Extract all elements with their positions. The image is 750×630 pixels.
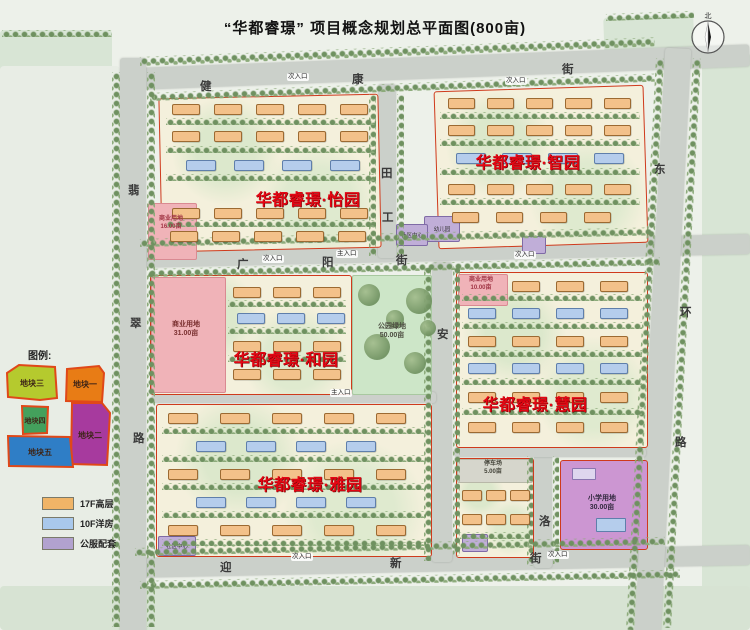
entrance-label: 次入口 [547, 551, 569, 559]
building-17f [233, 287, 261, 298]
street-char: 迎 [220, 559, 232, 575]
street-char: 田 [381, 165, 393, 181]
entrance-label: 主入口 [330, 389, 352, 397]
street-char: 洛 [539, 513, 551, 529]
building-17f [296, 231, 324, 242]
landuse-label-commercial-nw: 商业用地 16.00亩 [159, 216, 183, 232]
building-10f [468, 363, 496, 374]
tree-canopy [420, 320, 436, 336]
building-10f [186, 160, 216, 171]
tree-row [397, 94, 404, 256]
building-17f [168, 469, 198, 480]
compass-north-label: 北 [705, 12, 712, 20]
building-17f [298, 104, 326, 115]
building-17f [604, 98, 631, 109]
building-17f [526, 98, 553, 109]
building-10f [600, 308, 628, 319]
street-char: 广 [237, 256, 249, 272]
building-17f [565, 184, 592, 195]
building-10f [237, 313, 265, 324]
building-17f [462, 514, 482, 525]
tree-row [440, 112, 640, 119]
building-17f [340, 104, 368, 115]
tree-row [162, 427, 426, 434]
building-17f [600, 336, 628, 347]
building-17f [487, 125, 514, 136]
tree-row [162, 455, 426, 462]
building-17f [556, 281, 584, 292]
building-17f [452, 212, 479, 223]
legend-swatch-17f [42, 497, 74, 510]
building-17f [540, 212, 567, 223]
building-10f [468, 308, 496, 319]
building-10f [512, 308, 540, 319]
building-17f [220, 525, 250, 536]
building-10f [330, 160, 360, 171]
building-10f [317, 313, 345, 324]
building-17f [565, 125, 592, 136]
building-17f [338, 231, 366, 242]
green-parcel-right [702, 52, 750, 630]
building-10f [282, 160, 312, 171]
building-10f [277, 313, 305, 324]
tree-row [440, 139, 640, 146]
building-17f [487, 98, 514, 109]
tree-row [2, 30, 112, 37]
tree-row [462, 378, 642, 385]
building-17f [600, 422, 628, 433]
road-internal-east [454, 448, 646, 457]
street-char: 安 [437, 326, 449, 342]
tree-row [553, 456, 559, 564]
building-17f [604, 125, 631, 136]
compass-icon: 北 [686, 8, 730, 58]
school-building [572, 468, 596, 480]
building-10f [346, 497, 376, 508]
building-17f [168, 413, 198, 424]
tree-row [228, 327, 346, 334]
district-label-zhiyuan: 华都睿璟·智园 [476, 149, 581, 173]
legend-label-10f: 10F洋房 [80, 517, 114, 530]
district-label-heyuan: 华都睿璟·和园 [234, 346, 339, 370]
building-17f [512, 422, 540, 433]
tree-row [460, 532, 530, 539]
building-10f [594, 153, 624, 164]
building-10f [346, 441, 376, 452]
building-17f [487, 184, 514, 195]
building-17f [298, 131, 326, 142]
street-char: 新 [390, 555, 402, 571]
building-17f [462, 490, 482, 501]
entrance-label: 主入口 [336, 250, 358, 258]
district-label-yayuan: 华都睿璟·雅园 [258, 471, 363, 495]
landuse-label-parking: 停车场 5.00亩 [484, 461, 502, 477]
tree-row [462, 294, 642, 301]
building-17f [376, 469, 406, 480]
building-17f [604, 184, 631, 195]
building-17f [273, 369, 301, 380]
building-17f [324, 413, 354, 424]
building-17f [584, 212, 611, 223]
legend-row-17f: 17F高层 [42, 497, 114, 510]
legend-swatch-public [42, 537, 74, 550]
building-17f [212, 231, 240, 242]
street-char: 工 [382, 209, 394, 225]
building-17f [510, 490, 530, 501]
building-17f [254, 231, 282, 242]
tree-row [162, 511, 426, 518]
site-plan-canvas: 幼儿园 社区中心 社区中心 商业用地 16.00亩 商业用地 31.00亩 公园… [0, 0, 750, 630]
street-char: 阳 [322, 254, 334, 270]
street-char: 路 [133, 430, 145, 446]
entrance-label: 次入口 [514, 251, 536, 259]
street-char: 路 [675, 434, 687, 450]
parcel-legend-label: 地块一 [73, 379, 97, 389]
building-10f [196, 441, 226, 452]
building-17f [272, 413, 302, 424]
building-10f [196, 497, 226, 508]
parcel-legend-label: 地块二 [78, 430, 102, 440]
street-char: 东 [654, 161, 666, 177]
building-17f [565, 98, 592, 109]
building-10f [296, 497, 326, 508]
building-17f [170, 231, 198, 242]
street-char: 环 [680, 304, 692, 320]
street-char: 街 [562, 61, 574, 77]
building-17f [340, 131, 368, 142]
building-10f [246, 441, 276, 452]
street-char: 翡 [128, 182, 140, 198]
landuse-label-park: 公园绿地 50.00亩 [378, 322, 406, 340]
building-17f [556, 422, 584, 433]
building-17f [233, 369, 261, 380]
legend-label-17f: 17F高层 [80, 497, 114, 510]
entrance-label: 次入口 [291, 553, 313, 561]
parcel-legend-label: 地块四 [25, 416, 46, 425]
building-17f [448, 98, 475, 109]
street-char: 翠 [130, 315, 142, 331]
building-17f [526, 125, 553, 136]
building-17f [324, 525, 354, 536]
building-17f [376, 413, 406, 424]
building-17f [214, 131, 242, 142]
building-10f [556, 363, 584, 374]
building-17f [556, 336, 584, 347]
street-char: 康 [352, 71, 364, 87]
building-17f [313, 287, 341, 298]
legend-swatch-10f [42, 517, 74, 530]
street-char: 街 [396, 252, 408, 268]
landuse-label-school: 小学用地 30.00亩 [588, 494, 616, 512]
landuse-label-commercial-main: 商业用地 31.00亩 [172, 320, 200, 338]
building-17f [600, 392, 628, 403]
building-17f [168, 525, 198, 536]
page-title: “华都睿璟” 项目概念规划总平面图(800亩) [224, 17, 526, 38]
building-17f [600, 281, 628, 292]
landuse-label-commercial-e: 商业用地 10.00亩 [469, 277, 493, 293]
tree-row [147, 72, 155, 627]
building-17f [256, 104, 284, 115]
street-char: 街 [530, 550, 542, 566]
entrance-label: 次入口 [287, 73, 309, 81]
legend-row-public: 公服配套 [42, 537, 116, 550]
tree-row [440, 198, 640, 205]
building-17f [273, 287, 301, 298]
entrance-label: 次入口 [262, 255, 284, 263]
parcel-legend-label: 地块三 [20, 378, 44, 388]
entrance-label: 次入口 [505, 77, 527, 85]
tree-row [166, 118, 376, 125]
tree-row [228, 300, 346, 307]
street-mid-south [432, 262, 452, 562]
building-10f [234, 160, 264, 171]
building-17f [486, 514, 506, 525]
district-label-huiyuan: 华都睿璟·慧园 [483, 391, 588, 415]
tree-row [462, 322, 642, 329]
building-17f [214, 208, 242, 219]
building-17f [256, 131, 284, 142]
tree-row [166, 146, 376, 153]
building-10f [296, 441, 326, 452]
tree-canopy [358, 284, 380, 306]
building-17f [220, 413, 250, 424]
building-17f [376, 525, 406, 536]
building-17f [448, 184, 475, 195]
building-17f [468, 336, 496, 347]
parcel-legend: 地块三 地块一 地块四 地块二 地块五 [2, 338, 128, 478]
building-17f [468, 422, 496, 433]
building-17f [172, 104, 200, 115]
legend-row-10f: 10F洋房 [42, 517, 114, 530]
building-10f [600, 363, 628, 374]
building-17f [526, 184, 553, 195]
parcel-legend-label: 地块五 [28, 447, 52, 457]
building-17f [313, 369, 341, 380]
building-17f [448, 125, 475, 136]
building-17f [512, 336, 540, 347]
tree-canopy [406, 288, 432, 314]
building-17f [486, 490, 506, 501]
tree-row [166, 220, 376, 227]
building-10f [512, 363, 540, 374]
building-17f [172, 131, 200, 142]
building-17f [496, 212, 523, 223]
district-label-yiyuan: 华都睿璟·怡园 [256, 186, 361, 210]
building-10f [246, 497, 276, 508]
building-17f [510, 514, 530, 525]
building-17f [272, 525, 302, 536]
tree-row [462, 350, 642, 357]
tree-row [166, 174, 376, 181]
building-17f [220, 469, 250, 480]
street-char: 健 [200, 78, 212, 94]
tree-row [162, 539, 426, 546]
building-10f [556, 308, 584, 319]
building-17f [512, 281, 540, 292]
tree-canopy [404, 352, 426, 374]
legend-label-public: 公服配套 [80, 537, 116, 550]
tree-row [453, 266, 460, 556]
building-17f [214, 104, 242, 115]
school-building [596, 518, 626, 532]
